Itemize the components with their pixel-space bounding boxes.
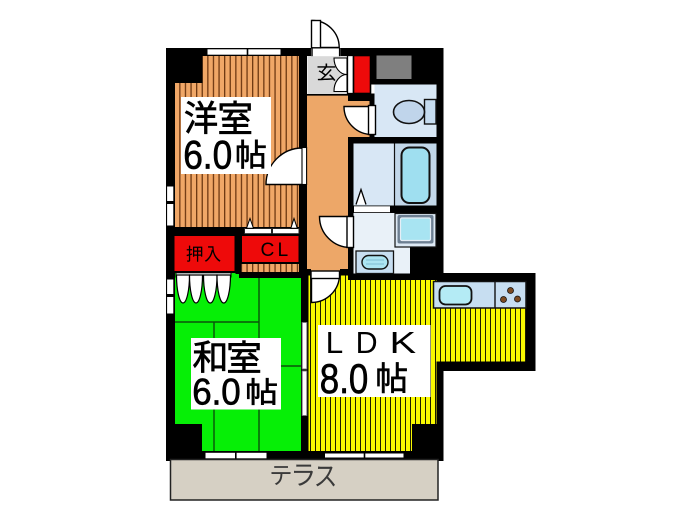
svg-text:K: K [390, 326, 417, 360]
svg-text:6.0: 6.0 [183, 133, 232, 177]
svg-text:6.0: 6.0 [192, 372, 241, 413]
svg-text:CL: CL [261, 240, 292, 261]
svg-text:8.0: 8.0 [320, 355, 369, 402]
